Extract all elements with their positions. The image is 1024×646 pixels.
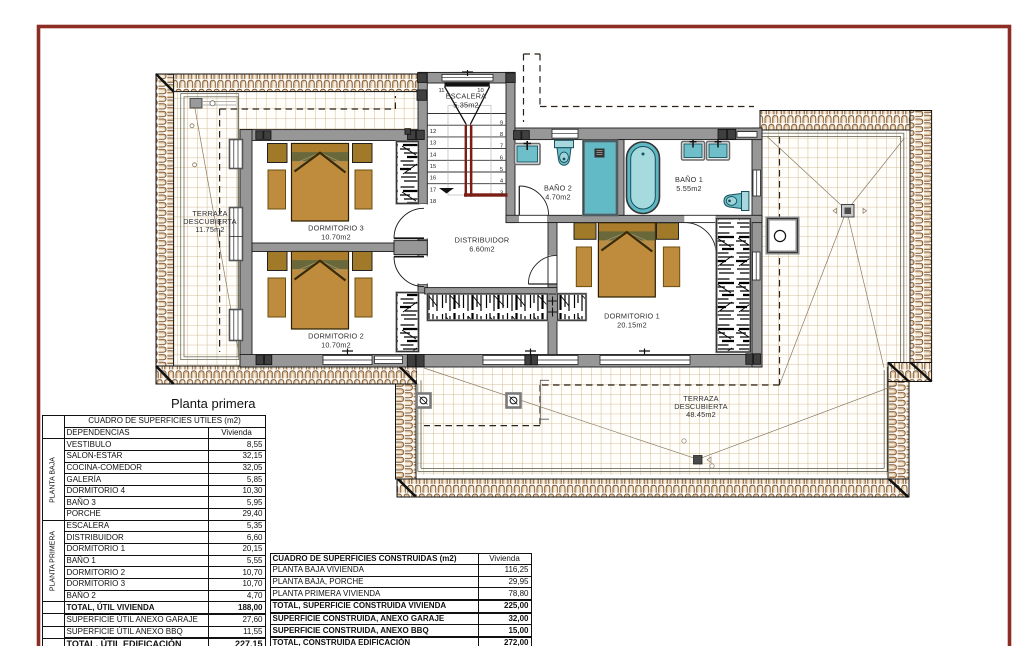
svg-text:11.75m2: 11.75m2 [195, 225, 224, 234]
svg-text:5.55m2: 5.55m2 [676, 184, 702, 193]
svg-text:DISTRIBUIDOR: DISTRIBUIDOR [455, 236, 510, 245]
svg-text:9: 9 [500, 120, 503, 126]
svg-text:13: 13 [430, 141, 436, 147]
svg-text:7: 7 [500, 144, 503, 150]
svg-text:16: 16 [430, 176, 436, 182]
svg-text:ESCALERA: ESCALERA [446, 92, 487, 101]
svg-text:6: 6 [500, 155, 503, 161]
svg-text:18: 18 [430, 199, 436, 205]
svg-text:11: 11 [438, 88, 444, 94]
svg-text:17: 17 [430, 187, 436, 193]
svg-text:12: 12 [430, 129, 436, 135]
svg-text:4.70m2: 4.70m2 [545, 193, 571, 202]
svg-text:6.60m2: 6.60m2 [469, 245, 495, 254]
svg-text:DORMITORIO 1: DORMITORIO 1 [604, 312, 660, 321]
svg-text:BAÑO 2: BAÑO 2 [544, 184, 572, 193]
svg-text:48.45m2: 48.45m2 [686, 410, 716, 419]
svg-text:BAÑO 1: BAÑO 1 [675, 175, 703, 184]
svg-text:10.70m2: 10.70m2 [321, 341, 351, 350]
svg-text:5: 5 [500, 167, 503, 173]
svg-text:DORMITORIO 2: DORMITORIO 2 [308, 332, 364, 341]
svg-text:8: 8 [500, 132, 503, 138]
svg-text:3: 3 [500, 190, 503, 196]
svg-text:10.70m2: 10.70m2 [321, 233, 351, 242]
svg-text:5.35m2: 5.35m2 [453, 101, 479, 110]
svg-text:15: 15 [430, 164, 436, 170]
svg-text:20.15m2: 20.15m2 [617, 321, 647, 330]
svg-text:14: 14 [430, 152, 437, 158]
svg-text:DORMITORIO 3: DORMITORIO 3 [308, 224, 364, 233]
